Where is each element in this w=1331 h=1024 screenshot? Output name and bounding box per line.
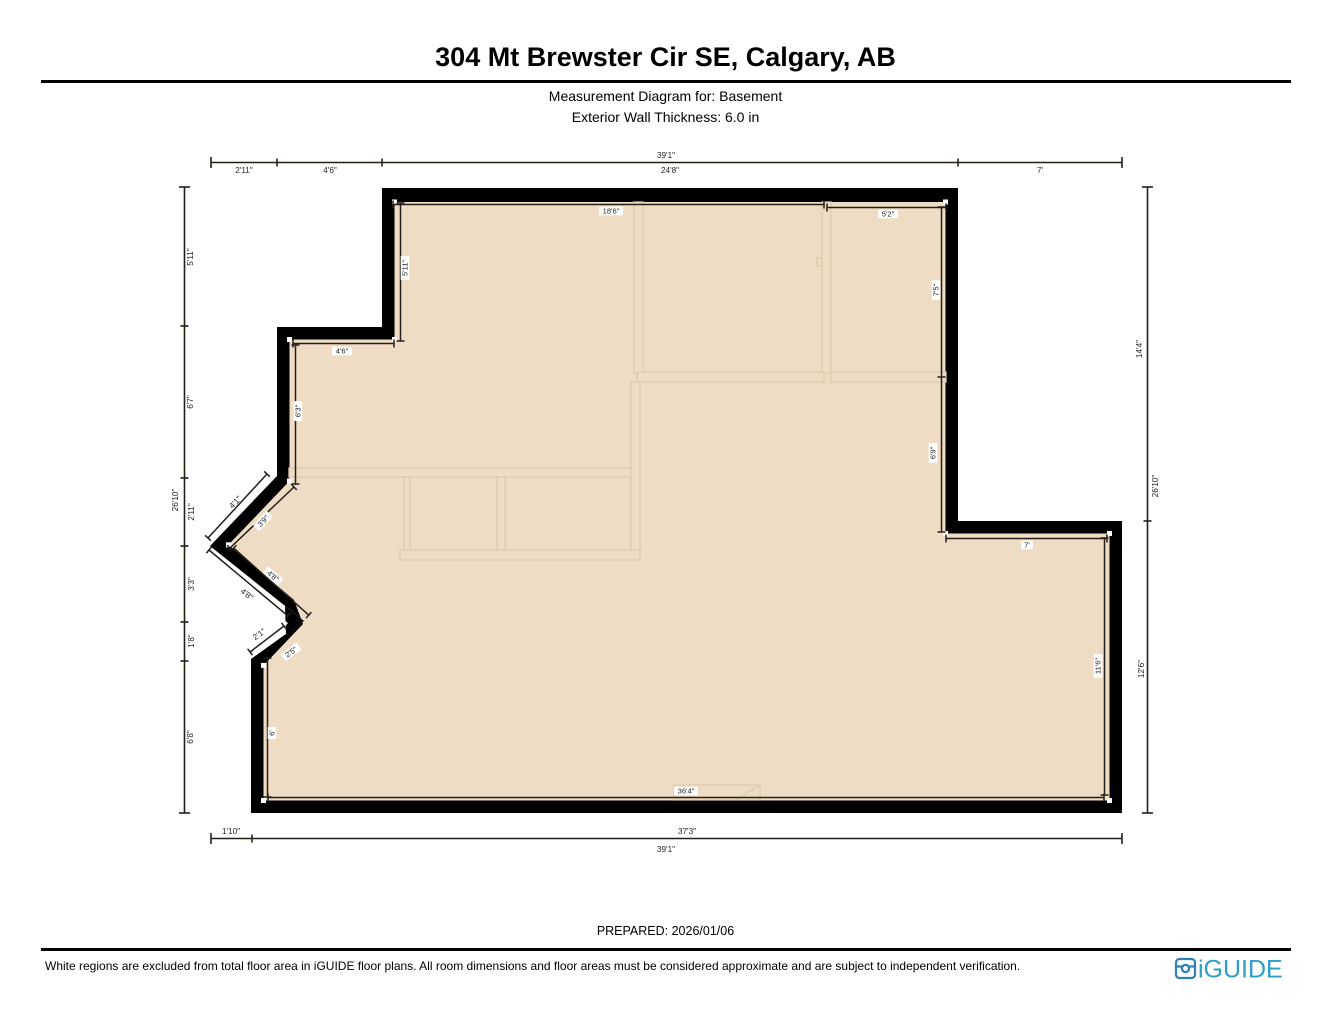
svg-text:7': 7' <box>1037 166 1044 175</box>
svg-text:6'9": 6'9" <box>929 446 938 459</box>
svg-text:5'2": 5'2" <box>882 210 895 219</box>
svg-text:39'1": 39'1" <box>657 845 675 854</box>
svg-text:2'11": 2'11" <box>187 503 196 521</box>
svg-text:5'11": 5'11" <box>401 260 410 277</box>
svg-text:6'8": 6'8" <box>186 730 195 744</box>
svg-text:1'10": 1'10" <box>222 827 240 836</box>
svg-text:14'4": 14'4" <box>1135 340 1144 358</box>
svg-text:4'8": 4'8" <box>239 587 255 603</box>
svg-text:26'10": 26'10" <box>171 489 180 512</box>
svg-text:6'3": 6'3" <box>294 404 303 417</box>
svg-text:11'6": 11'6" <box>1094 658 1103 675</box>
svg-text:18'6": 18'6" <box>603 207 620 216</box>
svg-text:12'6": 12'6" <box>1137 660 1146 678</box>
svg-text:26'10": 26'10" <box>1151 475 1160 498</box>
svg-text:5'11": 5'11" <box>186 248 195 266</box>
svg-text:4'1": 4'1" <box>227 494 243 510</box>
svg-text:36'4": 36'4" <box>678 787 695 796</box>
svg-text:7': 7' <box>1024 541 1030 550</box>
svg-text:39'1": 39'1" <box>657 151 675 160</box>
svg-text:37'3": 37'3" <box>678 827 696 836</box>
svg-text:6': 6' <box>268 730 277 736</box>
svg-text:4'6": 4'6" <box>336 347 349 356</box>
svg-text:1'8": 1'8" <box>187 634 196 648</box>
svg-text:3'3": 3'3" <box>187 577 196 591</box>
svg-text:7'5": 7'5" <box>932 283 941 296</box>
svg-text:24'8": 24'8" <box>661 166 679 175</box>
svg-text:6'7": 6'7" <box>186 395 195 409</box>
svg-text:2'11": 2'11" <box>235 166 253 175</box>
svg-text:4'6": 4'6" <box>323 166 337 175</box>
svg-text:iGUIDE: iGUIDE <box>1198 956 1283 984</box>
